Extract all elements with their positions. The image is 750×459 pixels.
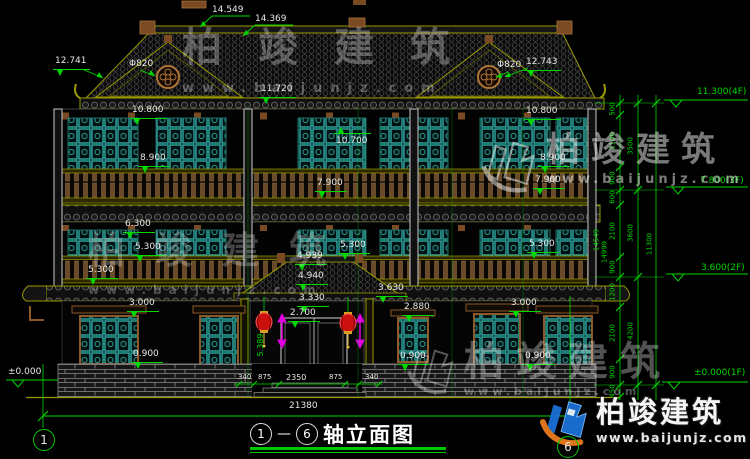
brand-name: 柏竣建筑 (596, 398, 748, 427)
base (26, 364, 620, 398)
title-underline-thin (250, 452, 446, 453)
title-axis-start-bubble: 1 (250, 423, 272, 445)
axis-bubble-left: 1 (33, 429, 55, 451)
cad-canvas: 14.54914.36912.741Φ820Φ82012.74311.72010… (0, 0, 750, 459)
roof-eave (80, 98, 604, 109)
axis-bubble-right: 6 (557, 436, 579, 458)
building-elevation (0, 0, 750, 459)
floor-3 (62, 109, 592, 206)
brand-url: www.baijunjz.com (596, 430, 748, 445)
title-underline-thick (250, 447, 446, 450)
title-text: 轴立面图 (323, 419, 415, 449)
drawing-title: 1 — 6 轴立面图 (250, 419, 415, 449)
floor2-cornice (54, 205, 600, 222)
title-axis-separator: — (277, 426, 291, 442)
title-axis-end-bubble: 6 (296, 423, 318, 445)
floor3-railing (62, 172, 592, 200)
